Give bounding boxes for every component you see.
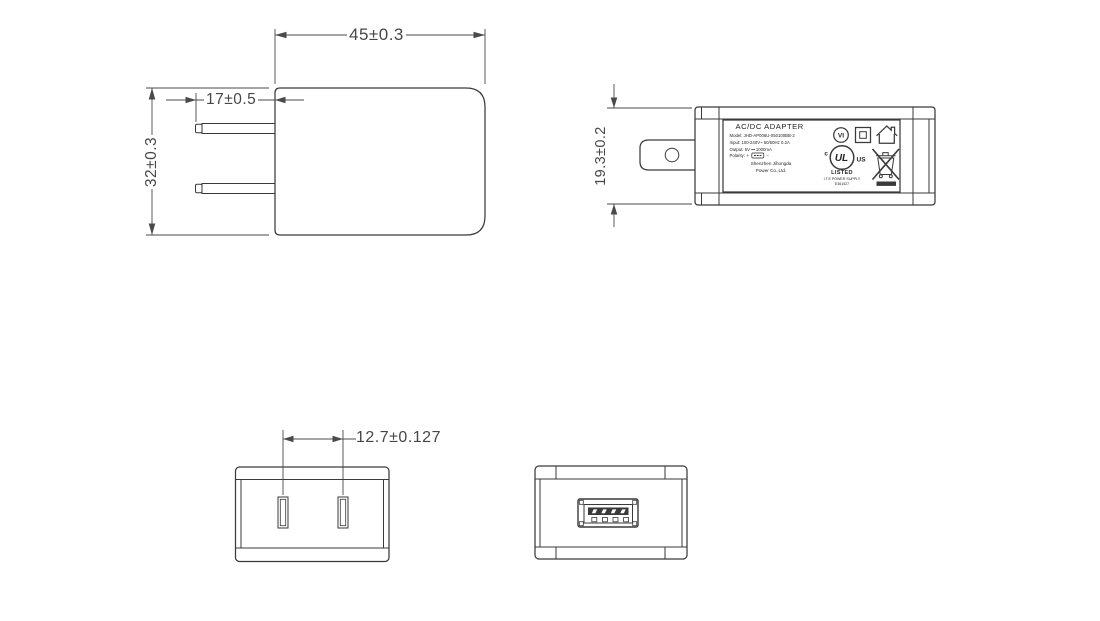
technical-drawing-canvas: VI UL c US LISTED I.T.E POWER SUPPLY E36… — [0, 0, 1100, 621]
plug-face-outline — [236, 467, 390, 562]
ul-file-number: E361527 — [835, 182, 849, 186]
line-art: VI UL c US LISTED I.T.E POWER SUPPLY E36… — [0, 0, 1100, 621]
label-polarity-caption: Polarity: — [730, 153, 746, 158]
weee-bar — [877, 182, 897, 186]
indoor-use-house-icon — [877, 126, 898, 143]
plug-face-seams — [236, 480, 389, 549]
class-ii-insulation-icon — [856, 128, 871, 143]
polarity-plus-sign: + — [747, 153, 750, 158]
dimension-blade-spacing — [283, 430, 356, 495]
label-input-line: Input: 100-240V~ 50/60Hz 0.2A — [730, 140, 790, 145]
ul-c-text: c — [824, 151, 828, 158]
ul-listed-mark: UL c US LISTED I.T.E POWER SUPPLY E36152… — [824, 146, 867, 186]
dim-thickness-value: 19.3±0.2 — [593, 126, 609, 186]
dim-body-height-text: 32±0.3 — [144, 122, 160, 202]
ul-listed-text: LISTED — [831, 170, 853, 176]
dim-prong-length-value: 17±0.5 — [204, 91, 258, 108]
usb-a-port — [578, 499, 638, 527]
plug-blade-top — [202, 124, 275, 134]
dim-body-height-value: 32±0.3 — [143, 134, 161, 188]
front-view: VI UL c US LISTED I.T.E POWER SUPPLY E36… — [607, 84, 935, 227]
dim-thickness-text: 19.3±0.2 — [593, 101, 609, 211]
ul-logo-text: UL — [835, 153, 848, 164]
blade-slot-left — [278, 497, 288, 528]
dim-prong-length-text: 17±0.5 — [204, 91, 258, 109]
efficiency-vi-icon: VI — [834, 128, 849, 143]
usb-polarity-icon — [751, 152, 765, 159]
label-model-line: Model: JHD-AP006U-050100BB-2 — [730, 133, 795, 138]
side-view — [146, 29, 485, 235]
adapter-body-outline — [275, 88, 485, 235]
blade-hole — [665, 148, 679, 162]
dim-body-width-text: 45±0.3 — [347, 25, 406, 45]
plug-blade-side — [640, 140, 695, 170]
dim-blade-spacing-text: 12.7±0.127 — [356, 429, 441, 447]
dim-body-width-value: 45±0.3 — [347, 25, 406, 44]
weee-crossed-bin-icon — [873, 149, 900, 186]
ul-supply-text: I.T.E POWER SUPPLY — [824, 177, 861, 181]
plug-blade-top-tip — [196, 124, 203, 132]
label-title: AC/DC ADAPTER — [736, 122, 804, 131]
plug-blade-bottom — [202, 184, 275, 194]
label-output-line: Output: 5V ⎓ 1000mA — [730, 147, 772, 152]
dimension-height-32 — [146, 88, 269, 235]
ul-us-text: US — [857, 157, 867, 164]
usb-end-view — [535, 466, 687, 559]
dim-blade-spacing-value: 12.7±0.127 — [356, 429, 441, 446]
blade-slot-right — [338, 497, 348, 528]
label-polarity-row: Polarity: + − — [730, 152, 769, 159]
bottom-view — [236, 430, 390, 562]
label-company-line2: Power Co.,Ltd. — [731, 168, 811, 173]
label-company-line1: Shenzhen Jihongda — [731, 161, 811, 166]
efficiency-vi-text: VI — [838, 133, 844, 140]
plug-blade-bottom-tip — [196, 184, 203, 192]
polarity-minus-sign: − — [766, 153, 769, 158]
